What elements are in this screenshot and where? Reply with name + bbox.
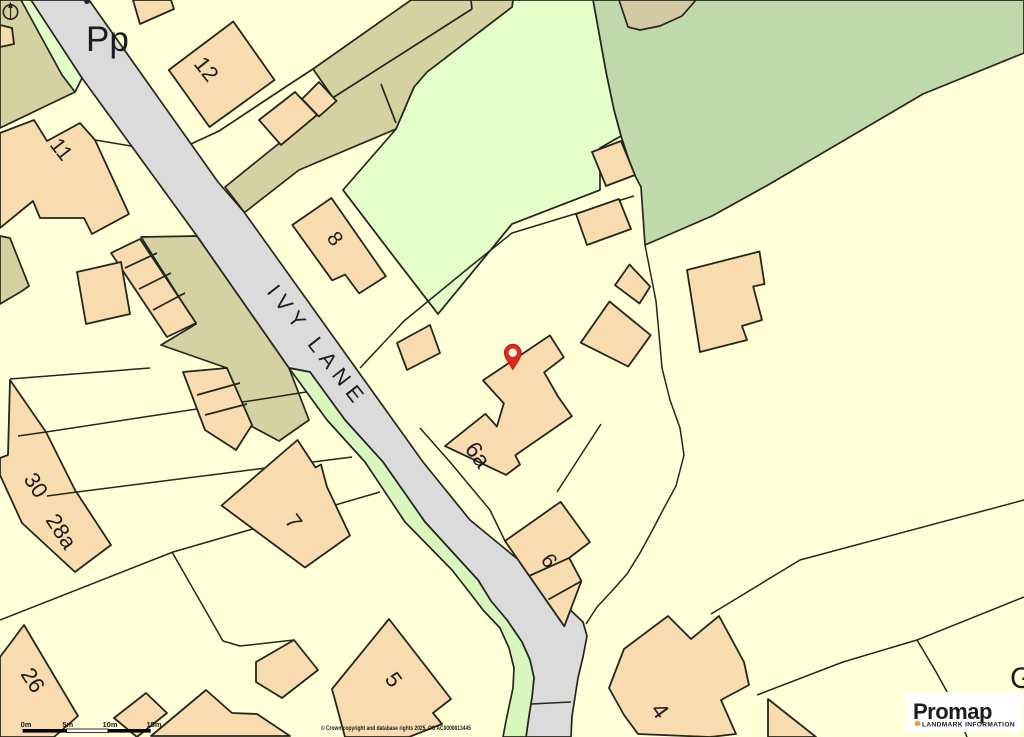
svg-text:Pp: Pp bbox=[86, 20, 129, 59]
svg-text:G: G bbox=[1010, 662, 1024, 695]
svg-text:10m: 10m bbox=[102, 720, 117, 729]
svg-text:5m: 5m bbox=[62, 720, 73, 729]
svg-text:0m: 0m bbox=[21, 720, 32, 729]
svg-text:Promap: Promap bbox=[913, 699, 992, 724]
svg-text:15m: 15m bbox=[146, 720, 161, 729]
svg-text:LANDMARK INFORMATION: LANDMARK INFORMATION bbox=[922, 722, 1015, 729]
svg-text:© Crown copyright and database: © Crown copyright and database rights 20… bbox=[321, 725, 471, 732]
